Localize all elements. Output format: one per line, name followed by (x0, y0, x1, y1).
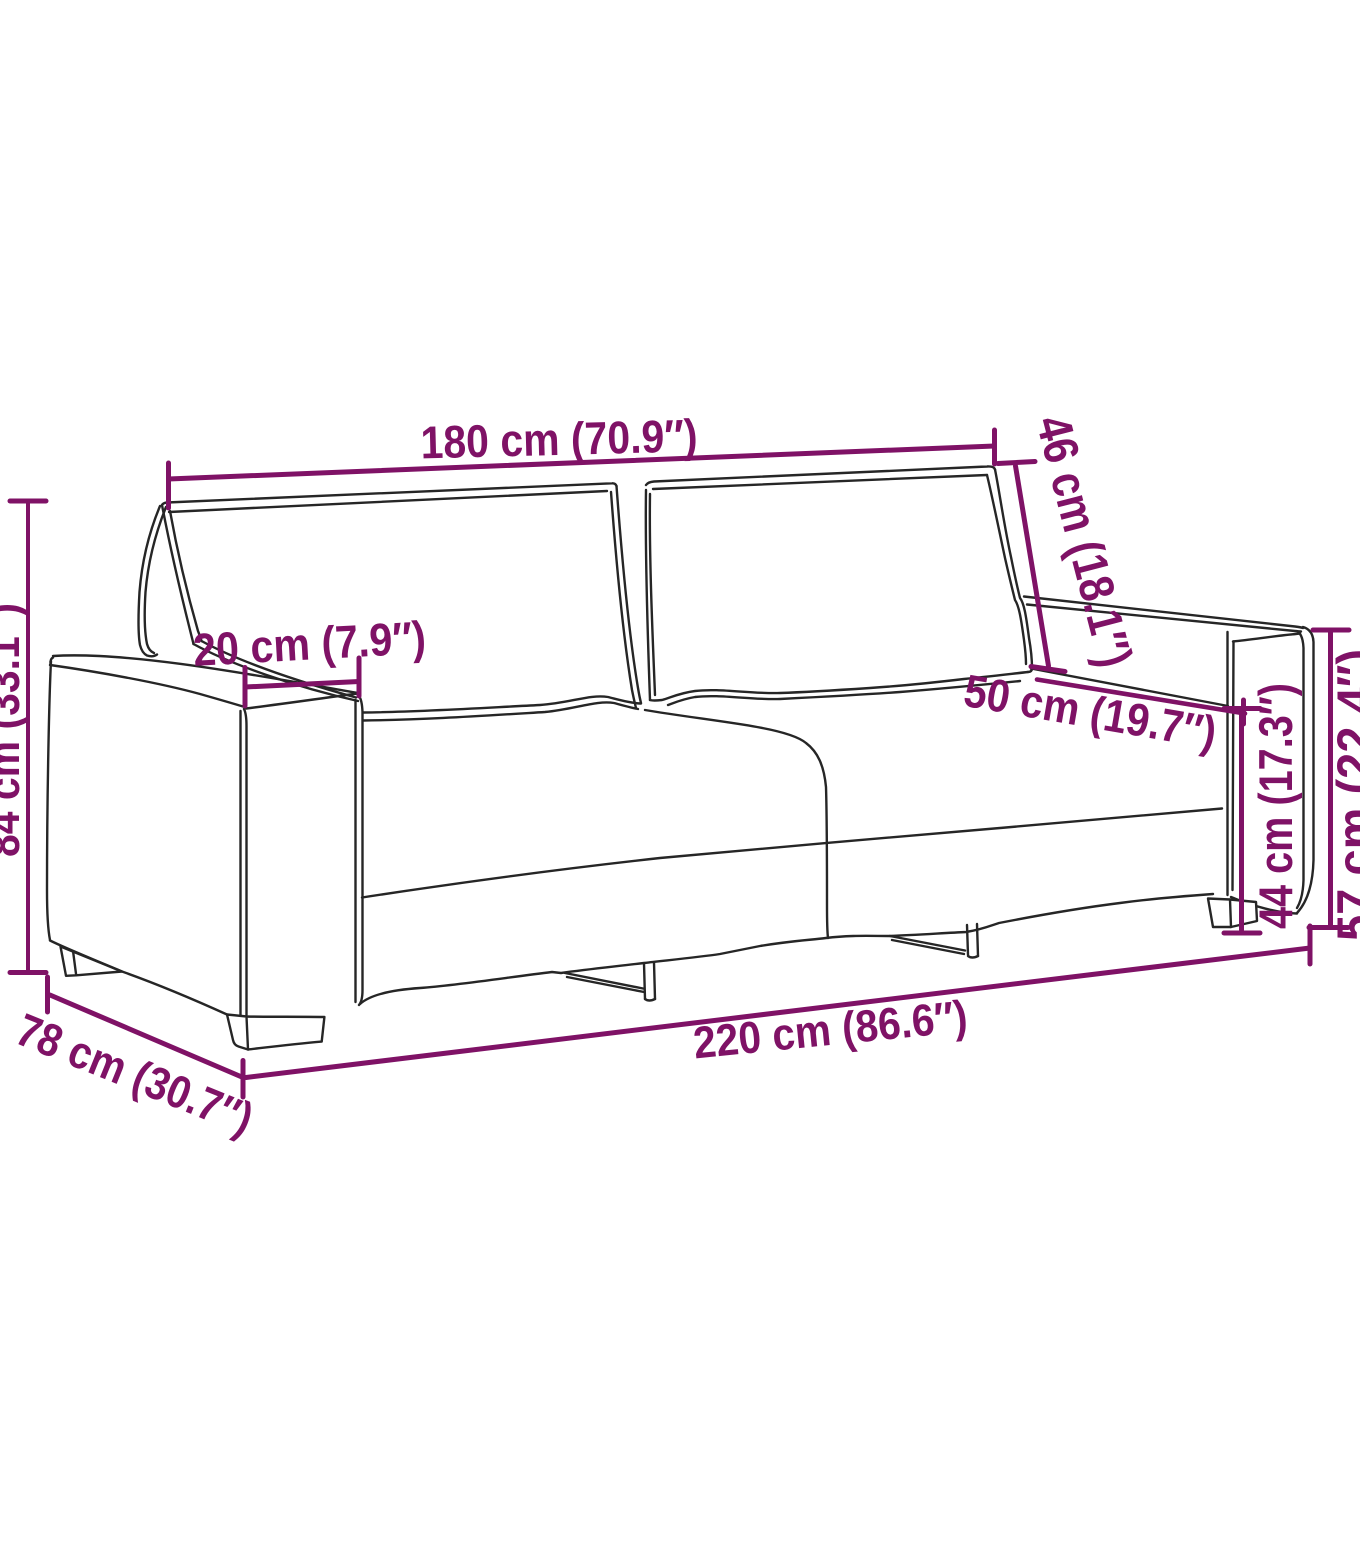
svg-text:180 cm (70.9″): 180 cm (70.9″) (420, 409, 698, 468)
svg-text:44 cm (17.3″): 44 cm (17.3″) (1249, 683, 1302, 929)
svg-text:84 cm (33.1″): 84 cm (33.1″) (0, 603, 29, 857)
svg-text:57 cm (22.4″): 57 cm (22.4″) (1327, 649, 1360, 941)
